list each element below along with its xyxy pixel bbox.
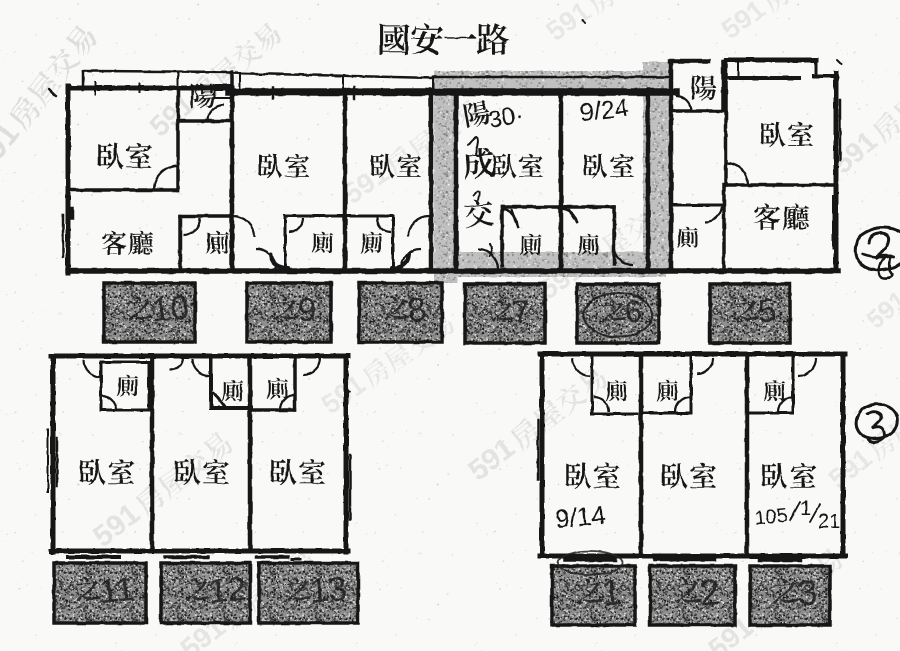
svg-text:10: 10 <box>150 290 190 330</box>
svg-text:1: 1 <box>800 498 811 520</box>
svg-text:13: 13 <box>308 571 348 611</box>
svg-text:9/24: 9/24 <box>579 94 630 127</box>
svg-text:8: 8 <box>406 291 428 329</box>
svg-text:2: 2 <box>698 571 722 614</box>
svg-text:21: 21 <box>818 511 840 533</box>
svg-text:12: 12 <box>207 571 247 611</box>
svg-text:5: 5 <box>756 292 778 330</box>
svg-text:9/14: 9/14 <box>554 500 607 534</box>
svg-text:7: 7 <box>511 294 531 330</box>
svg-text:3: 3 <box>796 571 820 614</box>
svg-text:1: 1 <box>600 571 624 614</box>
svg-text:105: 105 <box>753 505 788 530</box>
svg-text:11: 11 <box>98 571 136 611</box>
svg-text:9: 9 <box>296 291 318 329</box>
